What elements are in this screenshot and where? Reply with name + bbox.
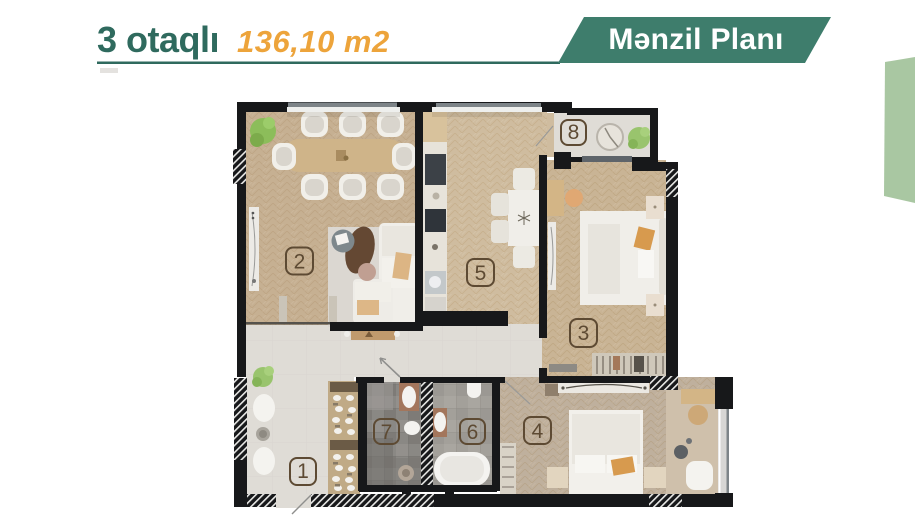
svg-text:8: 8	[568, 121, 580, 144]
svg-text:Mənzil Planı: Mənzil Planı	[608, 23, 783, 56]
svg-text:5: 5	[475, 262, 487, 285]
svg-text:1: 1	[297, 460, 309, 483]
svg-text:6: 6	[467, 421, 479, 444]
svg-text:3: 3	[578, 322, 590, 345]
svg-text:7: 7	[381, 421, 393, 444]
svg-text:2: 2	[294, 251, 306, 274]
svg-text:136,10 m2: 136,10 m2	[237, 24, 390, 59]
svg-text:4: 4	[532, 420, 544, 443]
svg-text:3 otaqlı: 3 otaqlı	[97, 19, 219, 60]
